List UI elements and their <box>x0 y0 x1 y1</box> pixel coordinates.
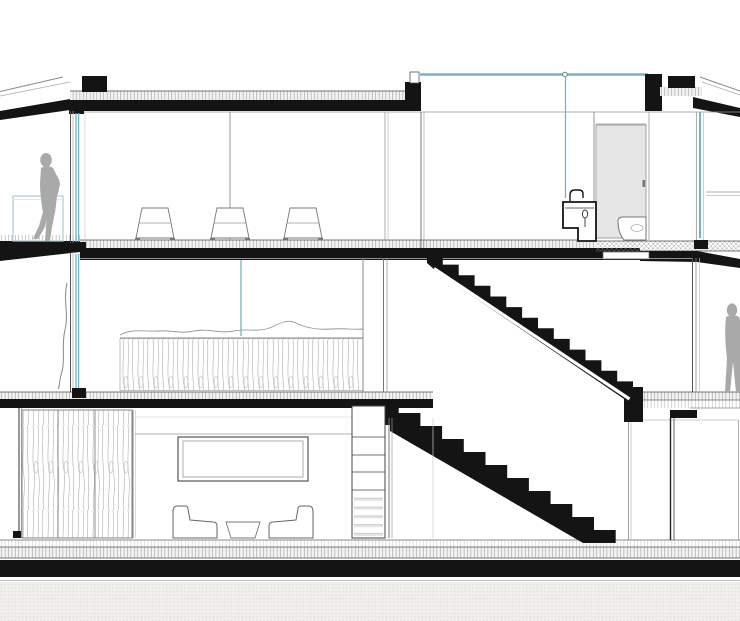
bar-stool <box>135 208 175 240</box>
bathroom-floor-hatch <box>596 241 740 251</box>
bar-stool <box>283 208 323 240</box>
bedroom-glass-sill-connector <box>72 388 86 398</box>
faucet <box>570 190 583 201</box>
bed-wood-panel <box>120 339 363 391</box>
left-wall-base-block <box>13 531 21 538</box>
section-drawing-canvas <box>0 0 740 621</box>
bathroom-slab-step <box>603 252 649 259</box>
foundation-slab <box>0 560 740 577</box>
left-eave-slab <box>0 99 70 120</box>
right-eave-outline-1 <box>700 77 740 91</box>
lower-stair-flight <box>377 400 616 543</box>
roof-corner-block-right <box>645 74 662 111</box>
upper-floor-hatch <box>80 240 596 248</box>
ground-stipple-texture <box>0 582 740 621</box>
roof-right-hatch <box>660 87 702 96</box>
terrace-slab-hatch <box>637 392 740 400</box>
curtain <box>58 283 67 389</box>
left-eave-outline-1 <box>0 77 63 92</box>
roof-parapet-block-right <box>668 76 695 88</box>
ground-floor <box>13 406 739 540</box>
armchair-right <box>269 506 313 538</box>
roof-step-block <box>405 82 421 111</box>
shower-panel-handle <box>643 180 646 187</box>
roof-step-notch <box>410 72 419 83</box>
bar-stools <box>135 208 323 240</box>
wardrobe-wood-wall <box>22 410 132 538</box>
bathroom <box>563 124 646 241</box>
balcony-slab-hatch <box>0 235 80 241</box>
toilet <box>618 217 646 240</box>
person-standing-terrace <box>725 303 740 392</box>
floor-buildup-lower-hatch <box>0 547 740 558</box>
right-eave-slab <box>640 251 740 268</box>
roof <box>0 72 740 120</box>
coffee-table <box>226 522 260 538</box>
roof-slab-concrete <box>70 100 421 111</box>
bar-stool <box>210 208 250 240</box>
person-walking-upper-balcony <box>33 153 60 241</box>
left-floor-glass-connector <box>68 242 86 252</box>
armchair-left <box>173 506 217 538</box>
roof-parapet-block-left <box>82 76 107 92</box>
terrace-slab-layer2 <box>643 400 740 408</box>
tv-niche-outer <box>178 437 308 481</box>
floor-buildup-upper <box>0 540 740 546</box>
right-room-ceiling-beam <box>670 410 697 418</box>
upper-stair-stringer-gap <box>434 269 630 400</box>
middle-slab-hatch <box>0 392 433 399</box>
section-drawing <box>0 0 740 621</box>
roof-hatch <box>70 91 418 100</box>
left-roof-glass-connector <box>69 107 84 114</box>
site-ground <box>0 540 740 621</box>
shelf-drawer-stack <box>354 492 383 536</box>
right-floor-glass-connector <box>694 240 708 249</box>
